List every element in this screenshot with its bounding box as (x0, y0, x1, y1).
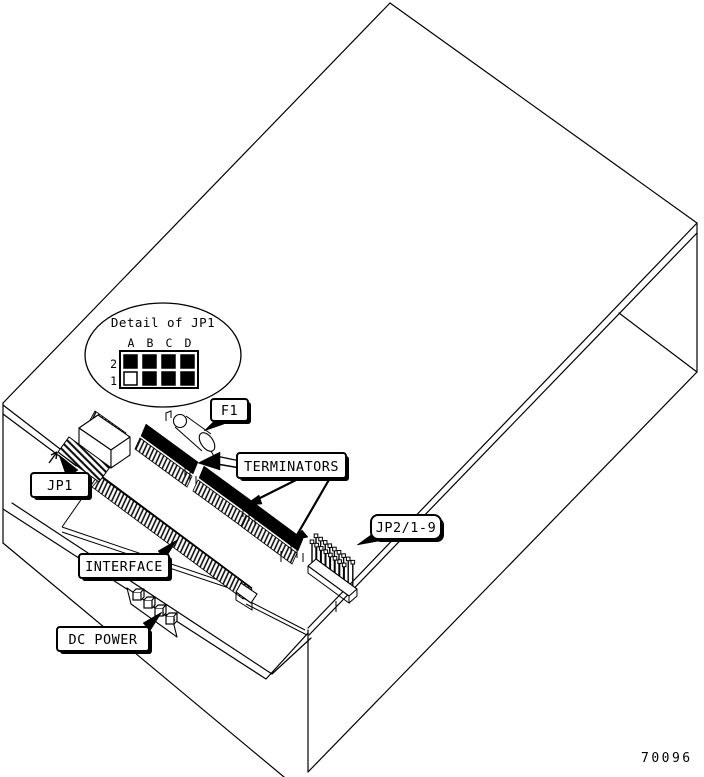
figure-number: 70096 (641, 751, 693, 766)
jumper-column-a: A (128, 336, 135, 350)
jp1-mini-arrow-icon (49, 452, 57, 463)
terminators-callout-label: TERMINATORS (244, 459, 339, 475)
jumper-cell-D1 (181, 372, 194, 385)
jumper-row-2: 2 (110, 357, 117, 371)
jumper-cell-C2 (162, 355, 175, 368)
diagram-canvas: JP1 F1 TERMINATORS JP2/1-9 INTERFACE DC … (0, 0, 704, 777)
jumper-column-b: B (147, 336, 154, 350)
interface-callout-label: INTERFACE (85, 559, 163, 575)
jumper-row-1: 1 (110, 374, 117, 388)
jumper-cell-B1 (143, 372, 156, 385)
jumper-column-c: C (166, 336, 173, 350)
jumper-cell-C1 (162, 372, 175, 385)
jumper-cell-D2 (181, 355, 194, 368)
interface-callout: INTERFACE (79, 554, 172, 581)
detail-inset: Detail of JP1 A B C D 2 1 (85, 303, 241, 407)
jumper-cell-A2 (124, 355, 137, 368)
jumper-column-d: D (185, 336, 192, 350)
jp1-callout-label: JP1 (47, 478, 73, 494)
drive-jumper-diagram: JP1 F1 TERMINATORS JP2/1-9 INTERFACE DC … (0, 0, 704, 777)
jumper-cell-B2 (143, 355, 156, 368)
terminators-callout: TERMINATORS (237, 453, 349, 481)
dc-power-callout-label: DC POWER (68, 632, 137, 648)
f1-callout: F1 (211, 399, 251, 424)
jp1-callout: JP1 (31, 473, 92, 500)
detail-inset-title: Detail of JP1 (111, 315, 215, 330)
jumper-cell-A1 (124, 372, 137, 385)
terminator-chips (135, 424, 303, 564)
jp2-callout-label: JP2/1-9 (376, 520, 436, 536)
jp2-callout: JP2/1-9 (371, 515, 444, 542)
terminators-leader-arrow-1-icon (198, 452, 220, 470)
dc-power-callout: DC POWER (57, 627, 152, 654)
f1-callout-label: F1 (221, 403, 238, 419)
jp2-header (308, 534, 357, 612)
